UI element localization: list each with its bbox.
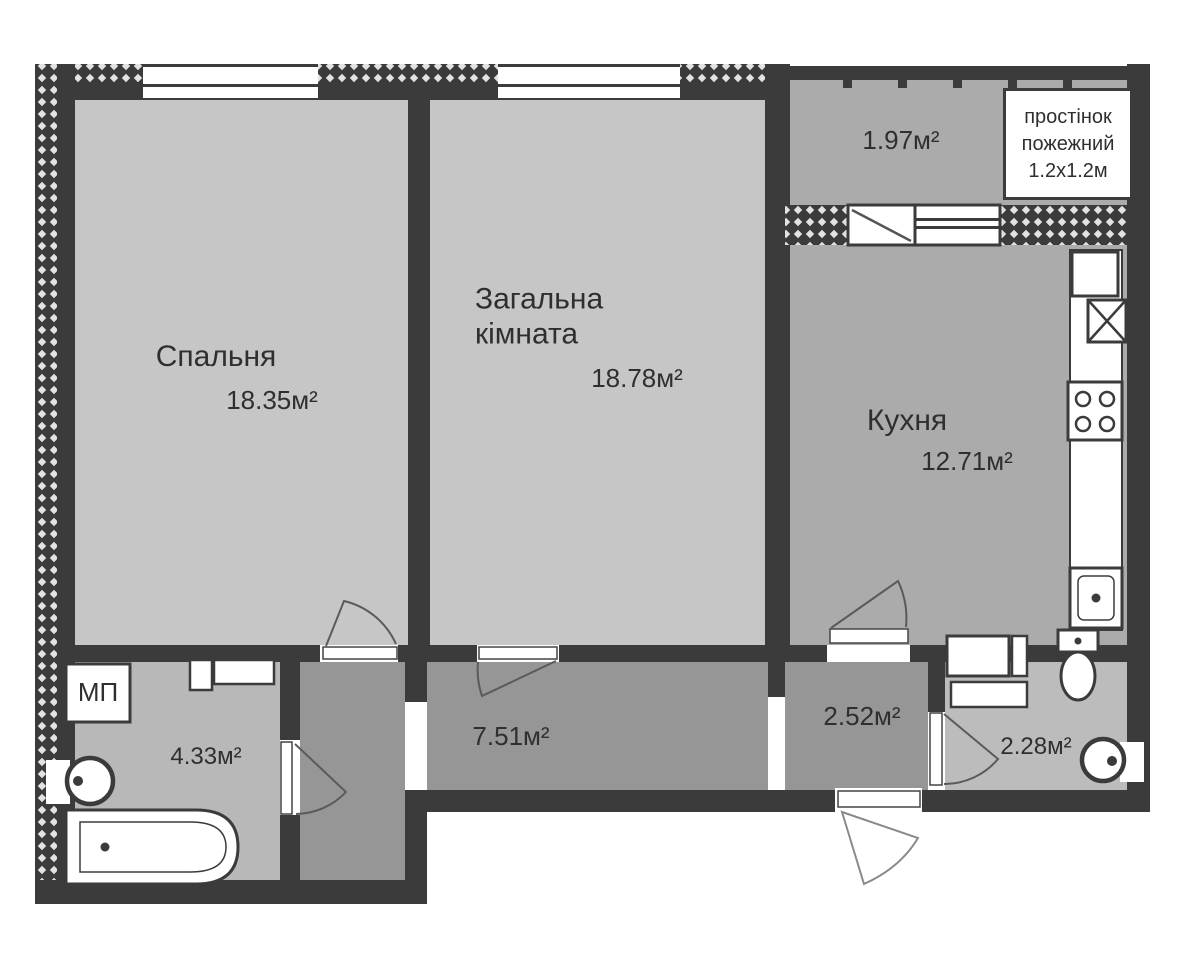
- bathroom-wall-upper: [280, 662, 300, 740]
- balcony-wall-hatch-left: [785, 205, 848, 245]
- bedroom-name: Спальня: [156, 340, 277, 375]
- bedroom-window: [143, 64, 318, 98]
- balcony-area: 1.97м²: [862, 126, 939, 156]
- wc-area: 2.28м²: [1000, 733, 1071, 761]
- kitchen-name: Кухня: [867, 404, 947, 439]
- fridge: [1072, 252, 1118, 296]
- balcony-window: [915, 205, 1000, 245]
- wc-sink: [1082, 739, 1144, 782]
- fire-partition-note: простінок пожежний 1.2х1.2м: [1003, 88, 1133, 200]
- fire-partition-line1: простінок: [1024, 104, 1112, 131]
- left-wall-inner: [57, 64, 75, 882]
- bathroom-wall-lower: [280, 815, 300, 880]
- entry-door[interactable]: [838, 791, 920, 884]
- stove: [1068, 382, 1122, 440]
- wc-shelves: [947, 636, 1027, 707]
- bottom-wall-right: [405, 790, 1150, 812]
- kitchen-door-opening: [827, 645, 910, 662]
- corridor-hall-wall: [405, 662, 427, 702]
- floor-plan: Спальня 18.35м² Загальна кімната 18.78м²…: [0, 0, 1200, 966]
- vent-shaft: [1088, 300, 1126, 342]
- left-wall-hatch: [35, 64, 57, 882]
- entry-wc-wall: [928, 662, 945, 712]
- fire-partition-line2: пожежний: [1022, 131, 1115, 158]
- entry-area: 2.52м²: [823, 702, 900, 732]
- living-room-window: [498, 64, 680, 98]
- fire-partition-line3: 1.2х1.2м: [1028, 158, 1107, 185]
- bedroom-floor: [75, 100, 408, 662]
- balcony-wall-hatch-right: [1000, 205, 1127, 245]
- bathroom-sink: [46, 758, 113, 804]
- bedroom-living-wall: [408, 100, 430, 662]
- toilet: [1058, 630, 1098, 700]
- corridor-hall-opening: [405, 702, 427, 790]
- kitchen-sink: [1070, 568, 1122, 628]
- living-room-name: Загальна кімната: [475, 283, 675, 352]
- living-kitchen-wall: [765, 64, 790, 662]
- corridor-floor: [300, 662, 405, 880]
- hallway-area: 7.51м²: [472, 722, 549, 752]
- mid-wall-c: [559, 645, 827, 662]
- balcony-door[interactable]: [848, 205, 915, 245]
- bathtub: [66, 810, 238, 884]
- bedroom-area: 18.35м²: [226, 386, 318, 416]
- hall-entry-opening: [768, 697, 785, 790]
- mid-wall-b: [398, 645, 477, 662]
- hall-entry-wall: [768, 662, 785, 697]
- living-room-area: 18.78м²: [591, 364, 683, 394]
- washing-machine-label: МП: [78, 678, 118, 708]
- kitchen-area: 12.71м²: [921, 447, 1013, 477]
- bathroom-area: 4.33м²: [170, 743, 241, 771]
